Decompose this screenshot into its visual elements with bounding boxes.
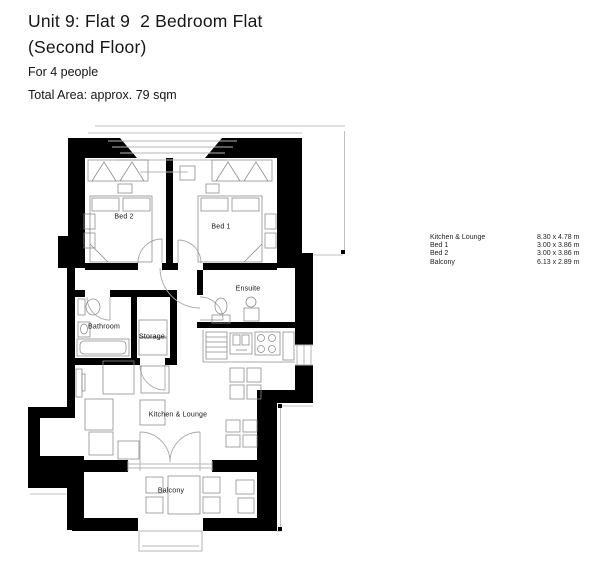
floor-plan-drawing (0, 0, 601, 579)
dimension-room-name: Kitchen & Lounge (430, 234, 537, 242)
room-label-storage: Storage (139, 334, 165, 341)
dimension-room-name: Bed 2 (430, 250, 537, 258)
dimension-row: Bed 1 3.00 x 3.86 m (430, 242, 601, 250)
dimension-room-name: Balcony (430, 259, 537, 267)
dimension-room-size: 3.00 x 3.86 m (537, 242, 601, 250)
dimensions-table: Kitchen & Lounge 8.30 x 4.78 m Bed 1 3.0… (430, 234, 601, 267)
room-label-bed-1: Bed 1 (211, 224, 230, 231)
dimension-room-size: 3.00 x 3.86 m (537, 250, 601, 258)
dimension-room-size: 8.30 x 4.78 m (537, 234, 601, 242)
dimension-row: Balcony 6.13 x 2.89 m (430, 259, 601, 267)
dimension-room-size: 6.13 x 2.89 m (537, 259, 601, 267)
room-label-ensuite: Ensuite (236, 286, 261, 293)
room-label-bathroom: Bathroom (88, 324, 120, 331)
dimension-room-name: Bed 1 (430, 242, 537, 250)
room-label-bed-2: Bed 2 (114, 214, 133, 221)
dimension-row: Bed 2 3.00 x 3.86 m (430, 250, 601, 258)
dimension-row: Kitchen & Lounge 8.30 x 4.78 m (430, 234, 601, 242)
walls (28, 138, 313, 531)
room-label-kitchen-lounge: Kitchen & Lounge (149, 412, 207, 419)
room-label-balcony: Balcony (158, 488, 184, 495)
floor-plan-page: Unit 9: Flat 9 2 Bedroom Flat (Second Fl… (0, 0, 601, 579)
